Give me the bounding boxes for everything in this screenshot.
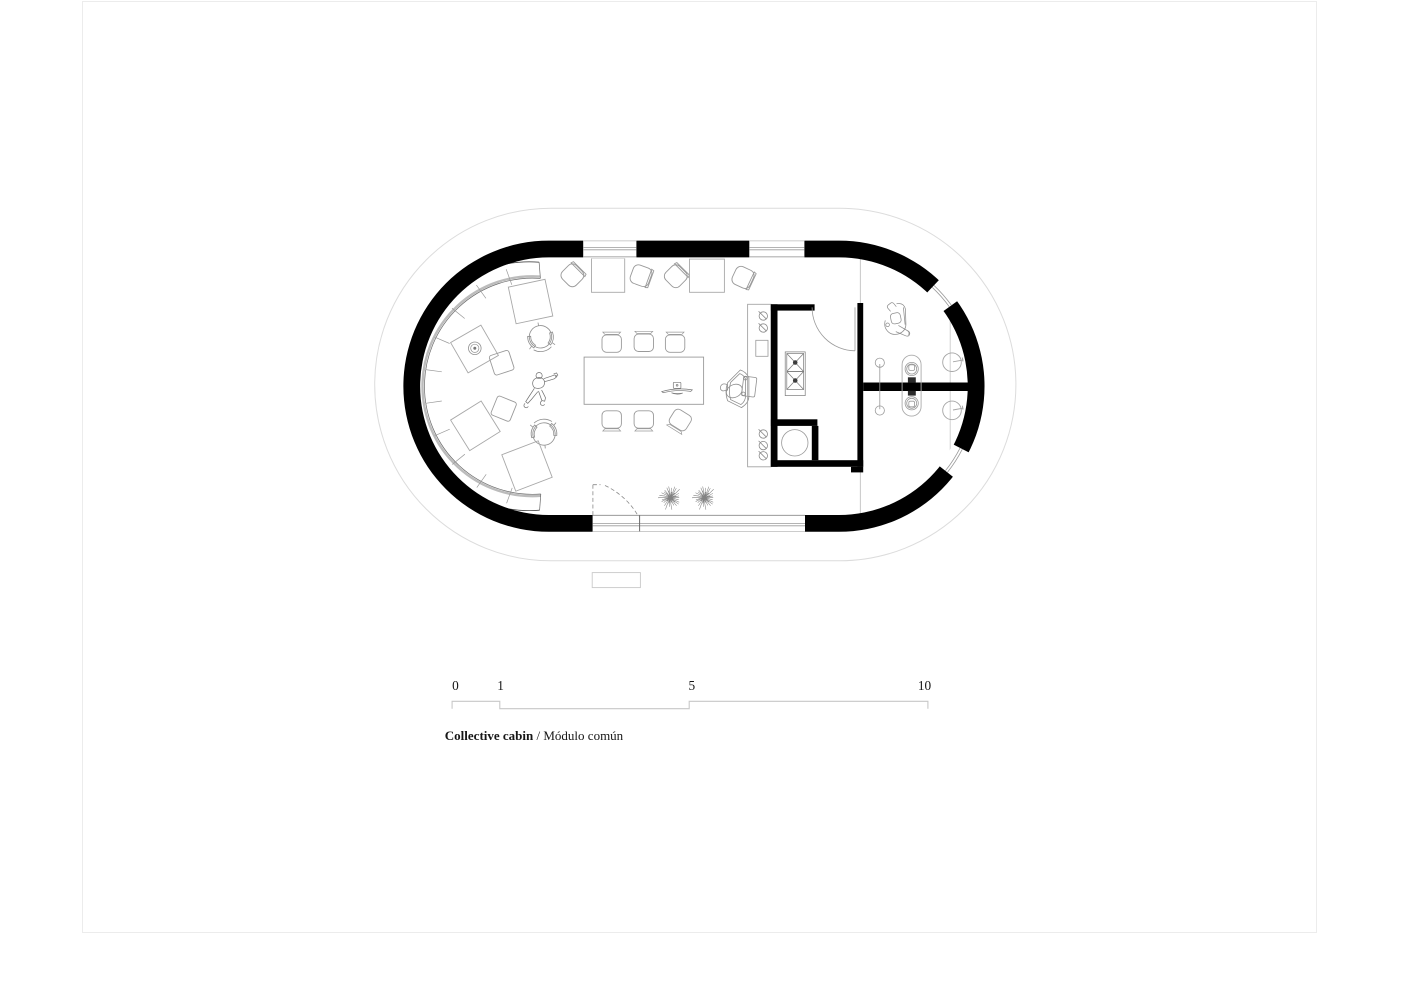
svg-text:5: 5: [688, 678, 695, 693]
svg-text:1: 1: [497, 678, 504, 693]
svg-text:10: 10: [918, 678, 932, 693]
svg-text:Collective cabin / Módulo comú: Collective cabin / Módulo común: [445, 728, 624, 743]
svg-text:0: 0: [452, 678, 459, 693]
